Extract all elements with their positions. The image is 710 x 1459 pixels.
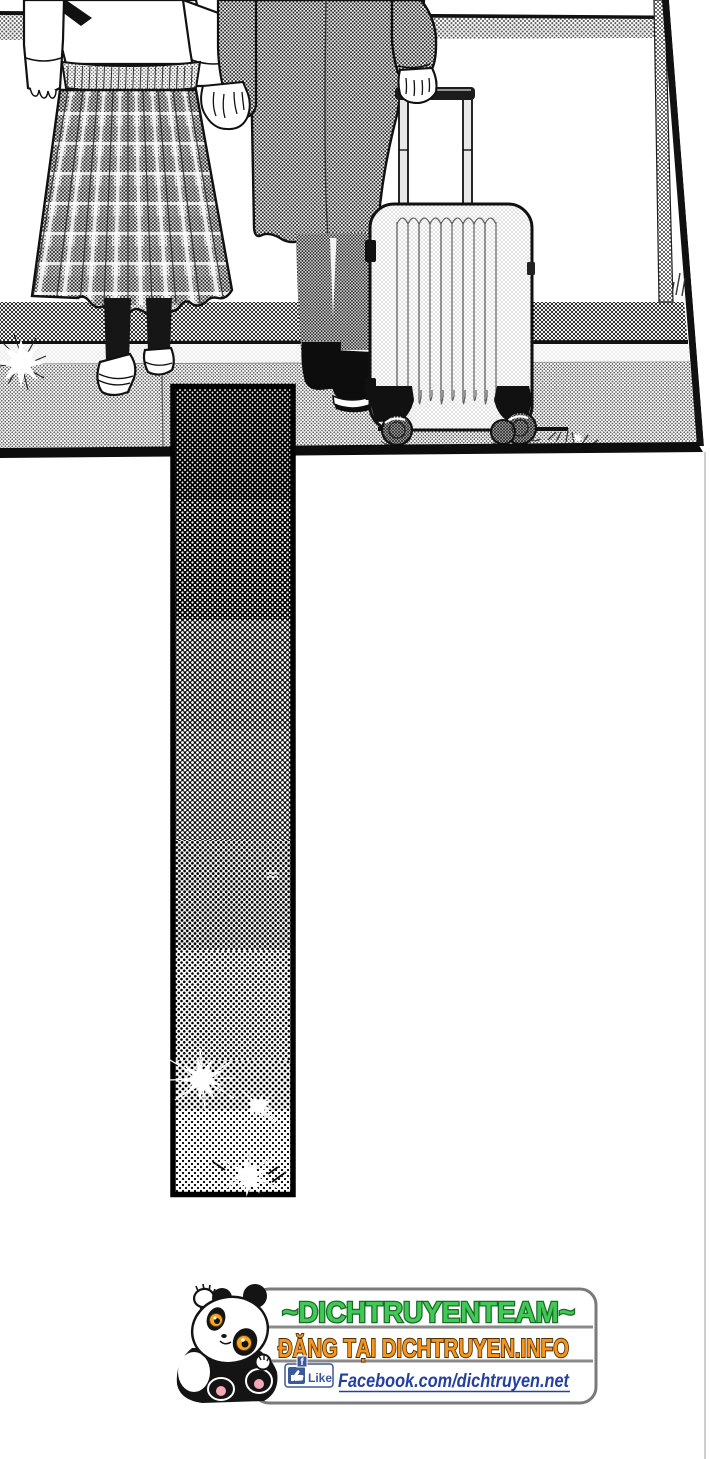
svg-text:Like: Like xyxy=(308,1371,332,1385)
svg-text:~DICHTRUYENTEAM~: ~DICHTRUYENTEAM~ xyxy=(282,1297,575,1329)
svg-text:Facebook.com/dichtruyen.net: Facebook.com/dichtruyen.net xyxy=(338,1371,570,1392)
svg-text:ĐĂNG TẠI DICHTRUYEN.INFO: ĐĂNG TẠI DICHTRUYEN.INFO xyxy=(278,1333,569,1363)
